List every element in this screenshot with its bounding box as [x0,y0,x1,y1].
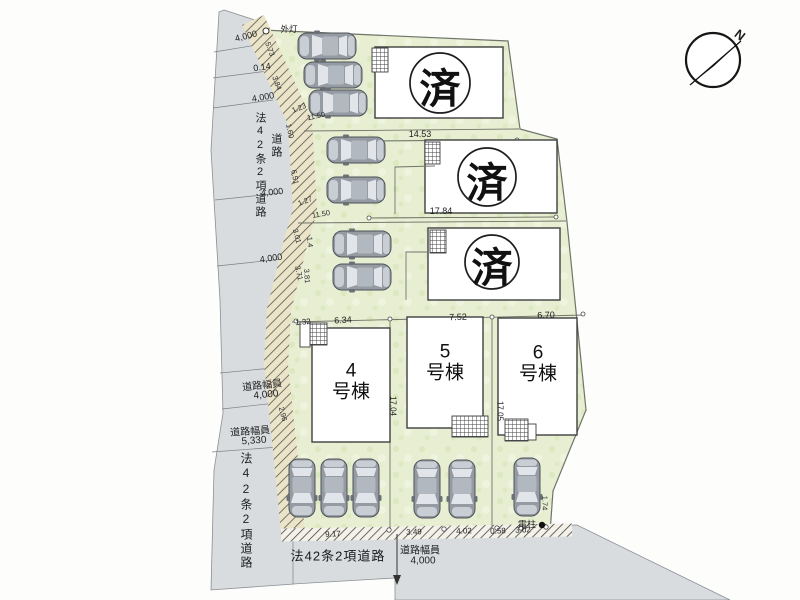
road-width-value: 4,000 [410,556,435,567]
unit5-frontage-dim: 7.52 [449,312,467,323]
car-icon [333,262,391,293]
lot-frontage-dim: 14.53 [409,129,432,139]
unit-4-suffix: 号棟 [332,382,370,403]
compass-icon [686,33,741,87]
unit-4-label: 4 号棟 [332,361,370,402]
site-plan: 4,000 0.14 4,000 法42条2項道路 道路 4,000 4,000… [0,0,800,600]
streetlight-icon [263,28,269,34]
left-road-word: 道路 [268,133,284,159]
unit4-frontage-dim: 6.34 [334,315,352,326]
sold-mark: 済 [472,234,513,294]
lot3-side-dim: 1.4 [305,236,315,247]
car-icon [298,31,356,62]
unit-5-label: 5 号棟 [426,342,464,383]
pole-offset-dim: 1.74 [541,496,550,511]
unit-6-suffix: 号棟 [519,364,557,385]
bottom-road-name: 法42条2項道路 [291,546,386,565]
car-icon [327,135,385,166]
car-icon [327,175,385,206]
sold-mark: 済 [420,55,461,115]
frontage-dim: 3.49 [406,527,422,537]
sold-mark: 済 [467,149,508,209]
unit-5-suffix: 号棟 [426,363,464,384]
car-icon [319,459,350,517]
car-icon [512,458,543,516]
utility-pole-icon [539,522,545,528]
unit-6-number: 6 [519,343,557,364]
site-plan-drawing [0,0,800,600]
frontage-dim: 9.17 [325,529,341,539]
car-icon [333,229,391,260]
unit-4-number: 4 [332,361,370,382]
frontage-dim: 0.58 [490,526,506,536]
car-icon [304,60,362,91]
unit4-depth-dim: 17.04 [389,396,398,416]
lot-frontage-dim: 17.84 [430,206,453,216]
streetlight-label: 外灯 [280,23,297,35]
utility-pole-label: 電柱 [518,518,536,531]
unit6-frontage-dim: 6.70 [537,310,555,321]
unit6-depth-dim: 17.05 [496,401,505,421]
left-road-name-lower: 法42条2項道路 [238,452,255,570]
row-offset-dim: 1.32 [295,317,311,327]
car-icon [351,459,382,517]
unit-6-label: 6 号棟 [519,343,557,384]
car-icon [412,460,443,518]
road-width-caption: 道路幅員 [400,542,440,557]
frontage-dim: 4.02 [456,526,472,536]
left-road-name: 法42条2項道路 [252,112,268,219]
unit-5-number: 5 [426,342,464,363]
car-icon [447,460,478,518]
road-width-value: 5,330 [241,435,267,448]
car-icon [287,459,318,517]
